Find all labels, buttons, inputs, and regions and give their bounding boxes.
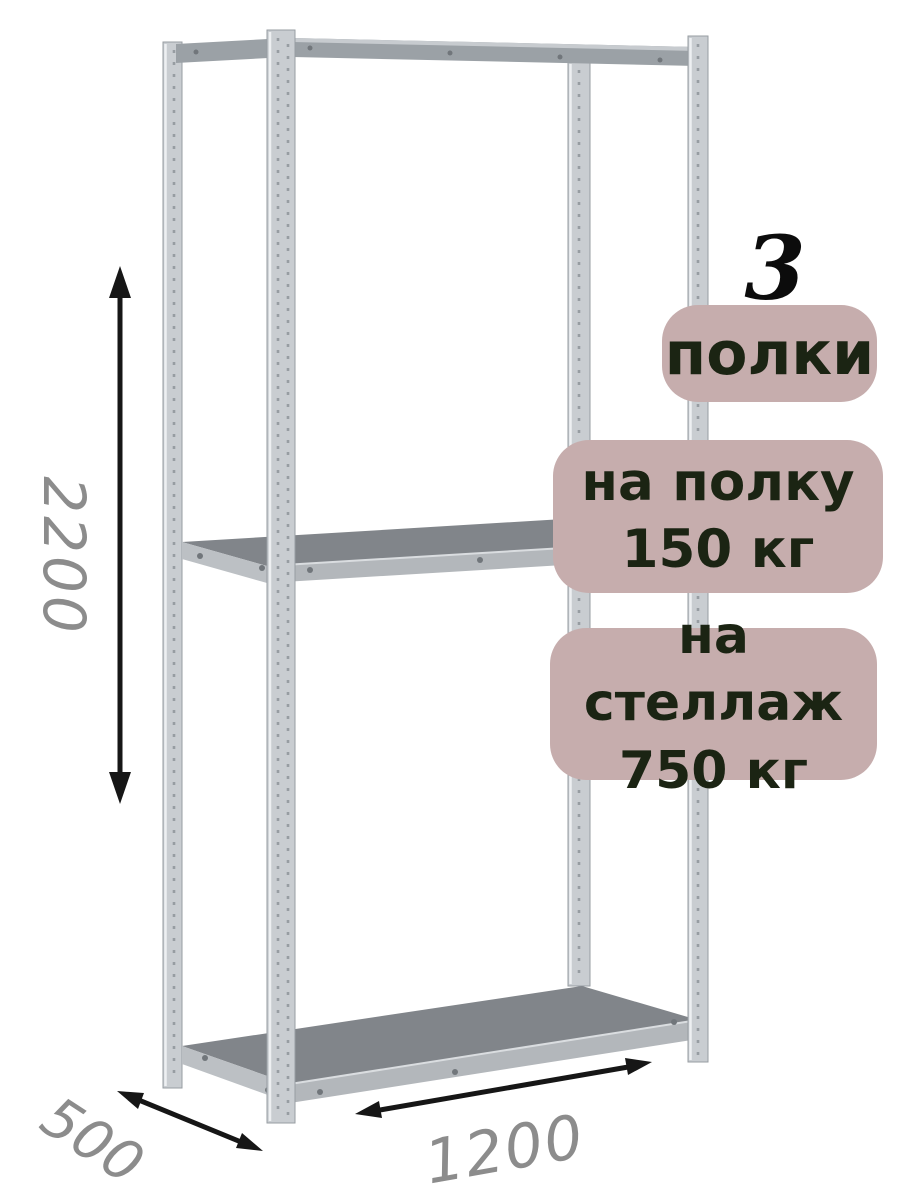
total-capacity-line2: 750 кг [619,738,808,806]
rack-bottom-shelf [182,986,698,1103]
total-capacity-badge: на стеллаж 750 кг [550,628,877,780]
rack-post-front-left [267,30,295,1123]
product-image: 2200 500 1200 3 полки на полку 150 кг на… [0,0,900,1200]
per-shelf-capacity-line2: 150 кг [622,517,815,583]
per-shelf-capacity-line1: на полку [581,450,854,516]
total-capacity-line1: на стеллаж [550,603,877,738]
height-dimension-arrow [109,266,131,804]
rack-top-shelf [176,38,697,66]
per-shelf-capacity-badge: на полку 150 кг [553,440,883,593]
rack-post-back-left [163,42,182,1088]
shelf-count-value: 3 [744,224,805,312]
height-dimension-label: 2200 [30,476,98,636]
shelf-count-badge: полки [662,305,877,402]
shelf-count-label: полки [665,319,874,389]
shelving-rack-illustration [0,0,900,1200]
